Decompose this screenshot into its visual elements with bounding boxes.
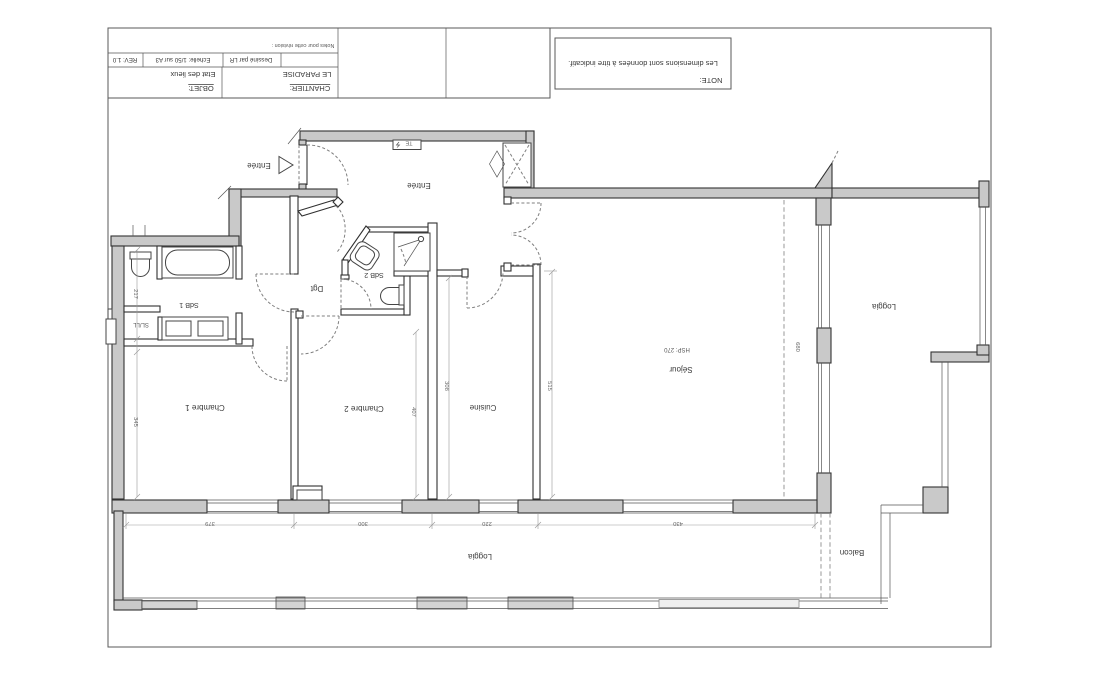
svg-text:430: 430 <box>673 520 683 526</box>
svg-text:300: 300 <box>358 520 368 526</box>
svg-text:345: 345 <box>132 417 138 427</box>
svg-text:Echelle: 1/50 sur A3: Echelle: 1/50 sur A3 <box>155 56 211 63</box>
svg-text:OBJET:: OBJET: <box>188 84 213 93</box>
svg-text:515: 515 <box>546 381 552 391</box>
svg-text:Loggia: Loggia <box>467 552 492 561</box>
svg-text:Loggia: Loggia <box>871 302 896 311</box>
svg-text:220: 220 <box>482 520 492 526</box>
svg-text:680: 680 <box>794 342 800 352</box>
svg-text:NOTE:: NOTE: <box>700 76 723 85</box>
svg-text:Etat des lieux: Etat des lieux <box>170 70 215 79</box>
svg-text:Séjour: Séjour <box>669 365 692 374</box>
svg-text:Chambre 1: Chambre 1 <box>185 403 225 412</box>
svg-text:LE PARADISE: LE PARADISE <box>283 70 332 79</box>
svg-text:Dgt: Dgt <box>310 284 323 293</box>
svg-text:Balcon: Balcon <box>840 548 864 557</box>
svg-text:SL/LL: SL/LL <box>133 321 149 327</box>
svg-text:Cuisine: Cuisine <box>469 403 496 412</box>
svg-text:379: 379 <box>205 520 215 526</box>
svg-text:CHANTIER:: CHANTIER: <box>290 84 330 93</box>
svg-text:REV: 1.0: REV: 1.0 <box>112 56 137 63</box>
svg-text:217: 217 <box>132 289 138 299</box>
svg-text:HSP: 270: HSP: 270 <box>663 346 689 352</box>
svg-text:Entrée: Entrée <box>407 181 431 190</box>
svg-text:Dessiné par LR: Dessiné par LR <box>229 56 272 63</box>
svg-text:407: 407 <box>410 407 416 417</box>
svg-text:Les dimensions sont données à: Les dimensions sont données à titre indi… <box>568 59 718 68</box>
svg-text:Chambre 2: Chambre 2 <box>344 404 384 413</box>
svg-text:SdB 2: SdB 2 <box>364 271 384 280</box>
svg-text:TE: TE <box>405 139 412 145</box>
svg-text:Notes pour cette révision :: Notes pour cette révision : <box>272 42 335 48</box>
svg-text:Entrée: Entrée <box>247 161 271 170</box>
svg-text:308: 308 <box>443 381 449 391</box>
svg-text:SdB 1: SdB 1 <box>179 301 199 310</box>
